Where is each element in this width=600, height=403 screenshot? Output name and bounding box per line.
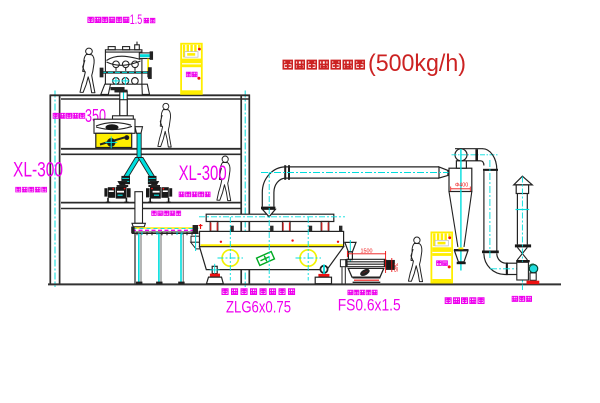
- svg-text:ZLG6x0.75: ZLG6x0.75: [226, 298, 291, 317]
- svg-text:Φ400: Φ400: [455, 183, 468, 189]
- svg-text:XL-300: XL-300: [13, 159, 63, 182]
- svg-text:FS0.6x1.5: FS0.6x1.5: [338, 296, 401, 315]
- svg-text:1.5: 1.5: [130, 12, 143, 27]
- svg-text:345: 345: [392, 263, 398, 272]
- svg-text:XL-300: XL-300: [179, 162, 227, 185]
- svg-text:(500kg/h): (500kg/h): [368, 50, 466, 77]
- svg-text:1500: 1500: [361, 249, 373, 255]
